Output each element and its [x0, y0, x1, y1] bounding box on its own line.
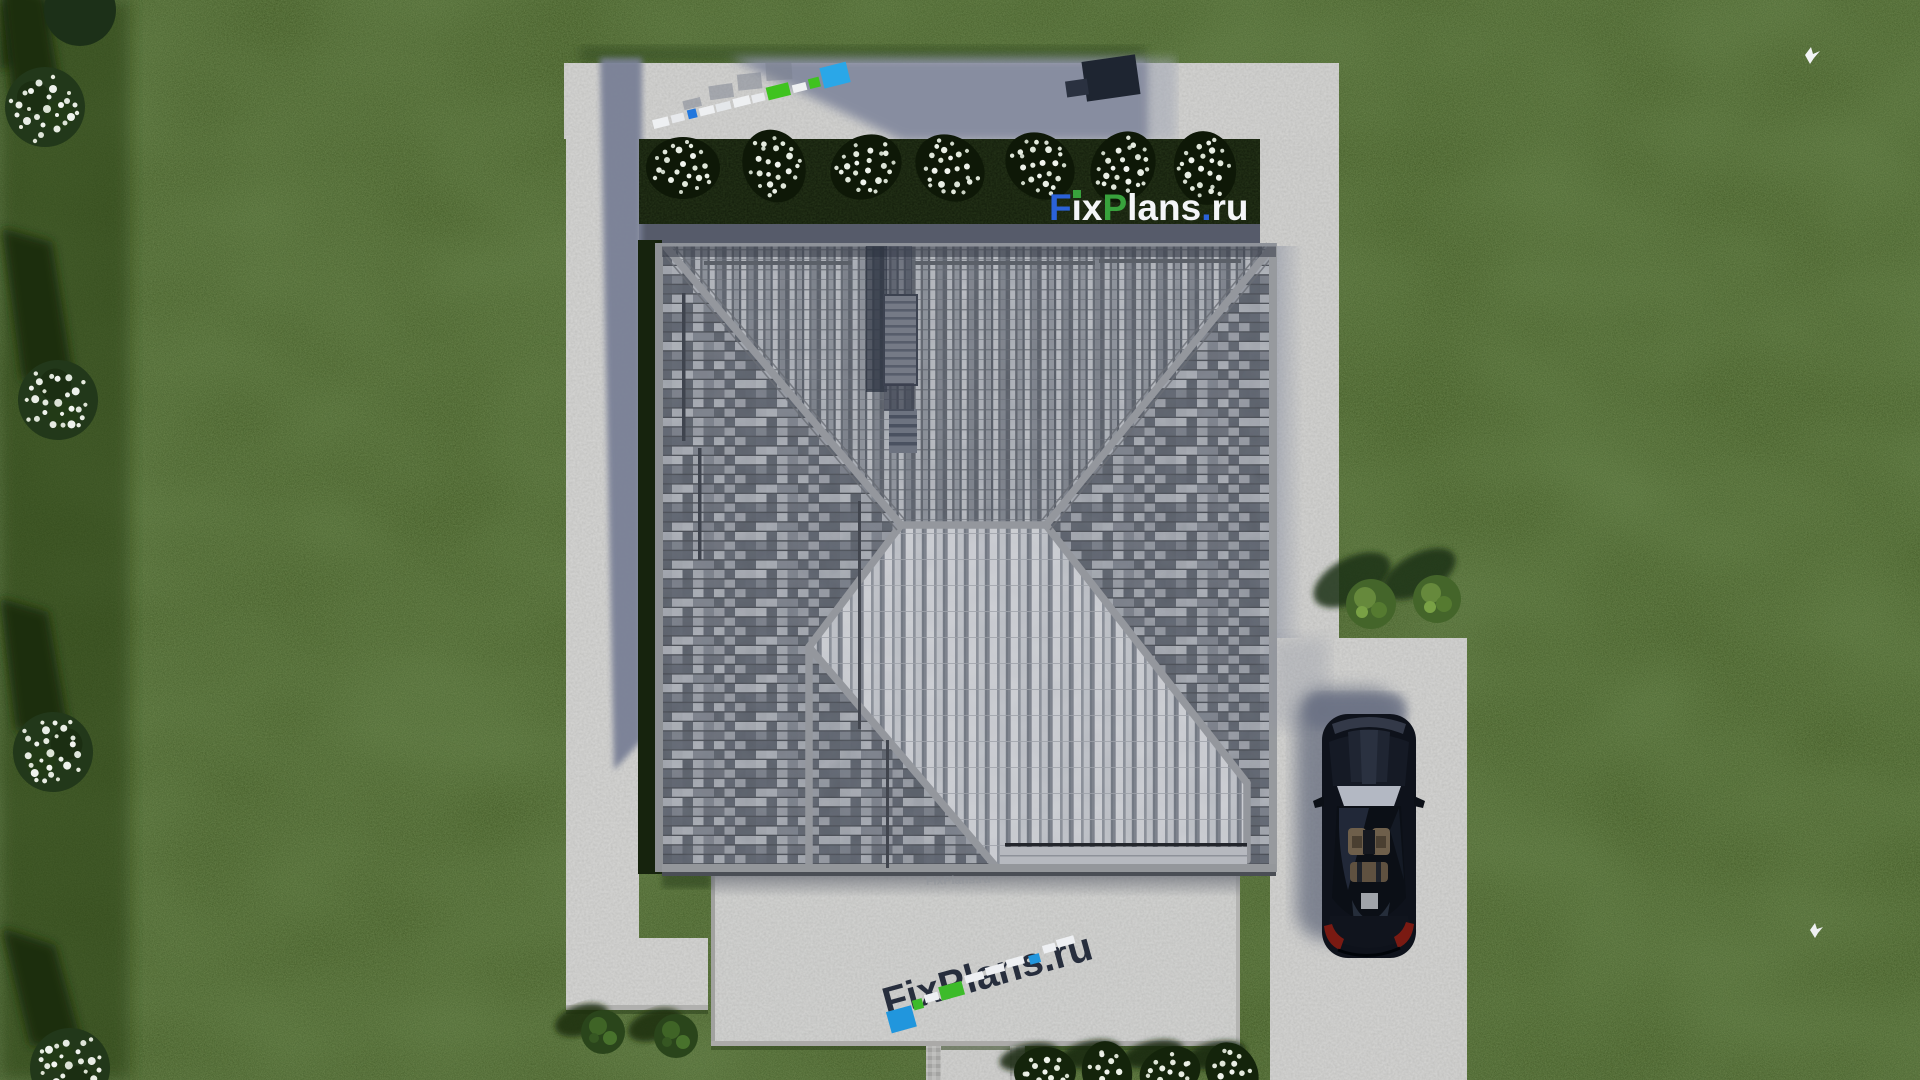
svg-text:FixPlans.ru: FixPlans.ru [926, 872, 991, 888]
